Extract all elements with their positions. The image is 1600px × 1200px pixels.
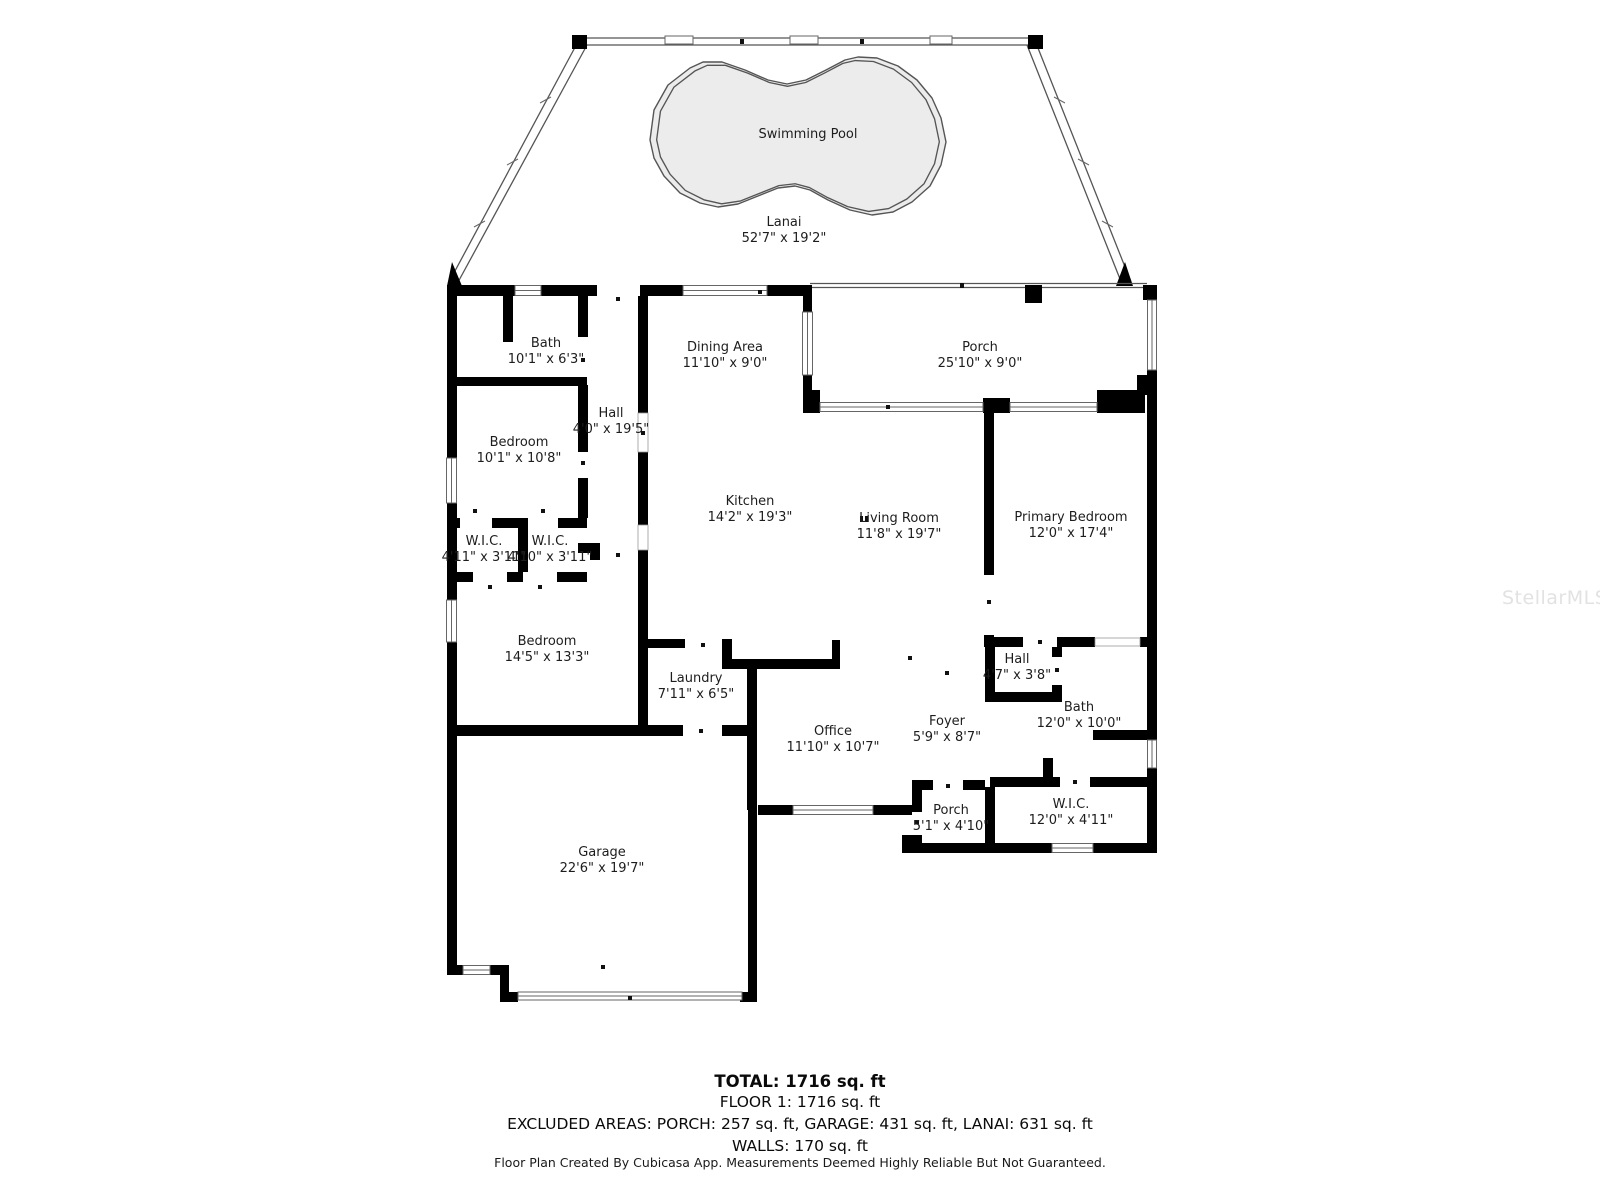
room-label-foyer: Foyer5'9" x 8'7" [913, 714, 981, 745]
room-label-kitchen: Kitchen14'2" x 19'3" [708, 494, 793, 525]
room-label-laundry: Laundry7'11" x 6'5" [658, 671, 734, 702]
room-label-porch: Porch25'10" x 9'0" [938, 340, 1023, 371]
summary-walls: WALLS: 170 sq. ft [0, 1137, 1600, 1155]
summary-total: TOTAL: 1716 sq. ft [0, 1072, 1600, 1091]
room-labels: Swimming PoolLanai52'7" x 19'2"Bath10'1"… [442, 127, 1128, 876]
interior-walls [448, 296, 1157, 843]
summary-floor1: FLOOR 1: 1716 sq. ft [0, 1093, 1600, 1111]
room-label-garage: Garage22'6" x 19'7" [560, 845, 645, 876]
summary-excluded: EXCLUDED AREAS: PORCH: 257 sq. ft, GARAG… [0, 1115, 1600, 1133]
room-label-lanai: Lanai52'7" x 19'2" [742, 215, 827, 246]
porch-open-edge [810, 283, 1147, 303]
stellar-mls-watermark: StellarMLS [1502, 587, 1600, 609]
room-label-dining-area: Dining Area11'10" x 9'0" [683, 340, 768, 371]
room-label-porch: Porch5'1" x 4'10" [913, 803, 989, 834]
room-label-primary-bedroom: Primary Bedroom12'0" x 17'4" [1014, 510, 1127, 541]
room-label-living-room: Living Room11'8" x 19'7" [857, 511, 942, 542]
room-label-bedroom: Bedroom10'1" x 10'8" [477, 435, 562, 466]
room-label-w-i-c-: W.I.C.12'0" x 4'11" [1029, 797, 1114, 828]
room-label-bath: Bath12'0" x 10'0" [1037, 700, 1122, 731]
floorplan-canvas: Swimming PoolLanai52'7" x 19'2"Bath10'1"… [0, 0, 1600, 1200]
room-label-office: Office11'10" x 10'7" [787, 724, 880, 755]
disclaimer-text: Floor Plan Created By Cubicasa App. Meas… [0, 1155, 1600, 1170]
area-summary: TOTAL: 1716 sq. ft FLOOR 1: 1716 sq. ft … [0, 1072, 1600, 1159]
room-label-bath: Bath10'1" x 6'3" [508, 336, 584, 367]
floorplan-svg: Swimming PoolLanai52'7" x 19'2"Bath10'1"… [0, 0, 1600, 1200]
room-label-bedroom: Bedroom14'5" x 13'3" [505, 634, 590, 665]
room-label-swimming-pool: Swimming Pool [759, 127, 858, 142]
